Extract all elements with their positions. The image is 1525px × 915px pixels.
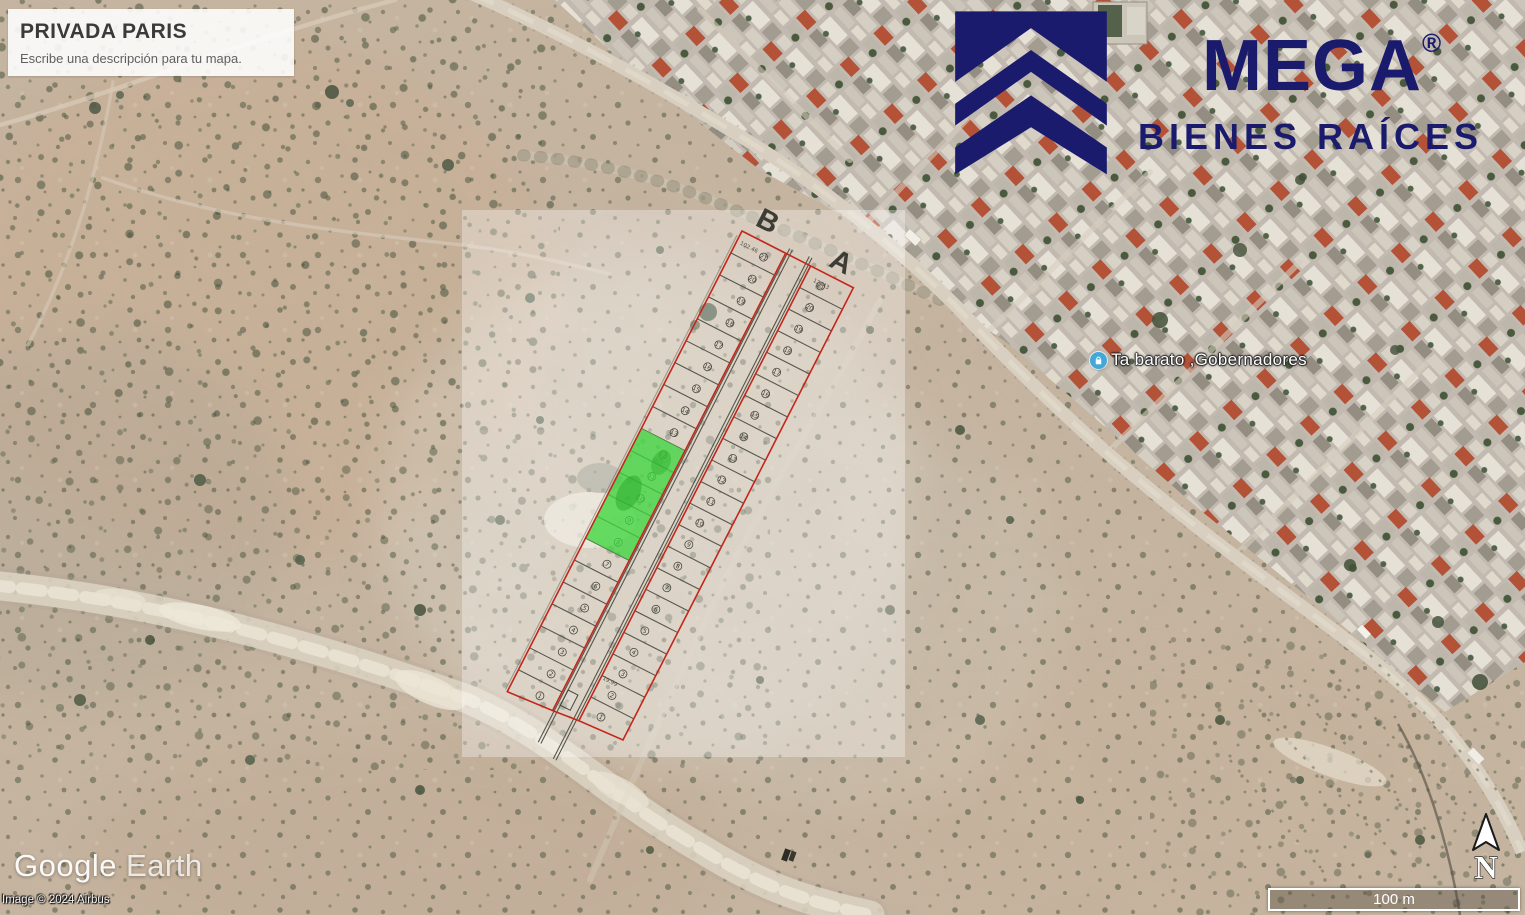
registered-mark: ® [1422,28,1441,58]
scale-bar-label: 100 m [1373,891,1415,908]
scale-bar: 100 m [1268,888,1520,911]
watermark-earth: Earth [126,848,203,883]
poi-label[interactable]: Ta barato ,Gobernadores [1090,350,1307,370]
map-title: PRIVADA PARIS [20,20,282,44]
north-label: N [1474,849,1497,884]
shopping-bag-icon[interactable] [1090,352,1107,369]
watermark-google: Google [14,848,117,883]
brand-name: MEGA® [1202,30,1441,102]
brand-tagline: BIENES RAÍCES [1138,116,1483,158]
google-earth-viewport: 212019181716151413121110987654321 212019… [0,0,1525,915]
google-earth-watermark: GoogleEarth [14,848,203,884]
map-title-card[interactable]: PRIVADA PARIS Escribe una descripción pa… [8,9,294,76]
triple-chevron-logo-icon [952,8,1110,176]
map-description-placeholder: Escribe una descripción para tu mapa. [20,51,282,66]
brand-watermark: MEGA® BIENES RAÍCES [952,8,1518,178]
poi-label-text: Ta barato ,Gobernadores [1111,350,1307,370]
imagery-copyright: Image © 2024 Airbus [2,894,110,906]
north-arrow-icon[interactable]: N [1464,812,1508,884]
